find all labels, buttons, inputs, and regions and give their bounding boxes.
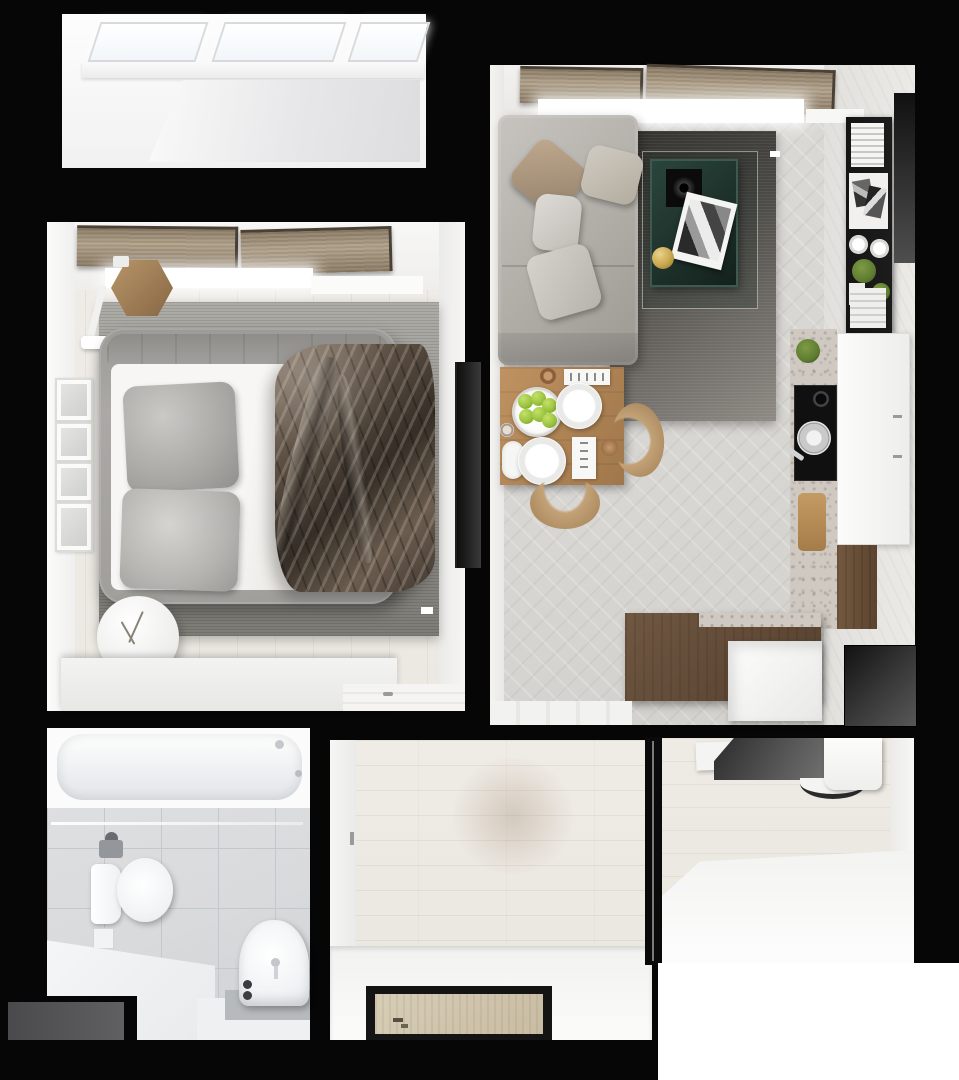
blanket: [275, 344, 435, 592]
blanket-fold: [332, 374, 378, 565]
sofa-cushion-gray: [524, 241, 604, 322]
dark-wall-panel: [894, 93, 915, 263]
bathtub: [47, 728, 310, 808]
tub-faucet: [275, 740, 284, 749]
door-handle: [383, 692, 393, 696]
pillow: [122, 381, 239, 493]
glass-partition-frame: [652, 741, 654, 961]
keys: [393, 1018, 403, 1022]
bathroom: [47, 728, 310, 1040]
rug-tag: [770, 151, 780, 157]
white-cabinet: [824, 738, 882, 790]
entry-doormat: [375, 994, 543, 1034]
dark-door-panel: [455, 362, 481, 568]
tall-white-cabinet: [837, 333, 910, 545]
coffee-table: [650, 159, 738, 287]
skylight-window: [348, 22, 431, 62]
shower-glass: [51, 822, 303, 825]
basin-handle: [243, 980, 252, 989]
corner-sofa: [498, 115, 638, 365]
blank-white-block: [658, 963, 959, 1080]
cabinet-handle: [893, 415, 902, 418]
bedroom-threshold: [343, 684, 465, 711]
glass-partition: [645, 737, 662, 965]
white-floor-area: [662, 850, 914, 965]
book-stack: [851, 123, 884, 167]
dark-niche: [844, 645, 917, 727]
skylight-window: [88, 22, 209, 62]
counter-plant: [796, 339, 820, 363]
waste-bin: [93, 928, 114, 949]
fruit-bowl: [512, 387, 562, 437]
window-light: [311, 276, 423, 294]
cabinet-handle: [893, 455, 902, 458]
frying-pan: [797, 421, 831, 455]
frame-art: [61, 508, 87, 546]
dining-chair: [530, 477, 600, 529]
gold-dish: [652, 247, 674, 269]
frame-art: [61, 384, 87, 416]
lamp-mount: [113, 256, 129, 267]
wall-picture-frame: [55, 462, 93, 502]
plate: [870, 239, 889, 258]
toilet-wall-mount: [99, 840, 123, 858]
cooktop: [794, 385, 837, 481]
napkin-with-cutlery: [572, 437, 596, 479]
living-bottom-wall: [490, 701, 632, 725]
bathtub-basin: [57, 734, 302, 800]
dark-slab-table: [714, 738, 824, 780]
dinner-plate: [556, 383, 602, 429]
cutlery: [580, 442, 588, 474]
balcony-ledge: [82, 62, 424, 78]
skylight-window: [212, 22, 347, 62]
apple: [542, 413, 557, 428]
blanket-fold: [269, 354, 343, 554]
wall-shelf: [846, 117, 892, 333]
water-glass: [500, 423, 514, 437]
wall-picture-frame: [55, 378, 93, 422]
plate: [849, 235, 868, 254]
rug-tag: [421, 607, 433, 614]
white-storage-box: [728, 641, 822, 721]
dining-table: [500, 367, 624, 485]
napkin-with-cutlery: [564, 369, 610, 385]
frame-art: [61, 428, 87, 456]
toilet-bowl: [117, 858, 173, 922]
apartment-floorplan-render: [0, 0, 959, 1080]
wall-picture-frame: [55, 422, 93, 462]
keys: [401, 1024, 408, 1028]
double-bed: [99, 328, 397, 604]
basin-spout: [274, 966, 278, 979]
tub-drain: [295, 770, 302, 777]
pepper-mill: [540, 368, 556, 384]
towel-stack: [850, 288, 886, 328]
dark-floor-mat: [8, 1002, 124, 1040]
hallway: [330, 740, 652, 1040]
cutting-board: [798, 493, 826, 551]
balcony-floor: [148, 80, 420, 162]
living-room-kitchen: [490, 65, 915, 725]
magazine-photo: [677, 199, 731, 262]
sideboard-counter: [699, 613, 821, 627]
door-handle: [350, 832, 354, 845]
potted-plant: [852, 259, 876, 283]
sofa-armrest: [498, 333, 638, 365]
wood-cabinet: [837, 545, 877, 629]
photo-box: [849, 173, 888, 229]
cutlery: [570, 373, 604, 381]
doormat-frame: [366, 986, 552, 1040]
frame-art: [61, 468, 87, 496]
pot: [812, 390, 830, 408]
basin-handle: [243, 991, 252, 1000]
balcony: [62, 14, 426, 168]
sofa-cushion-light: [579, 143, 646, 207]
wall-picture-frame: [55, 502, 93, 552]
floor-shadow: [448, 758, 578, 874]
bedroom: [47, 222, 465, 711]
utility-room: [662, 738, 914, 965]
pillow: [119, 488, 240, 592]
